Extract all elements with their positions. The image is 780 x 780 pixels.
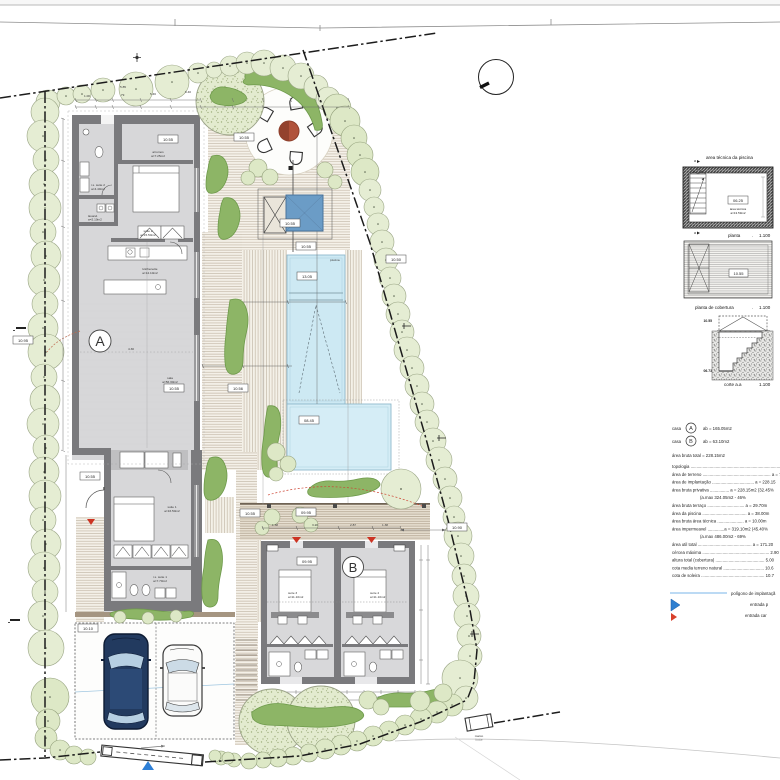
svg-text:topologia ....................: topologia ..............................… <box>672 464 780 469</box>
svg-text:09.95: 09.95 <box>302 559 313 564</box>
svg-text:área de terreno ..............: área de terreno ........................… <box>672 472 780 477</box>
svg-text:área de implantação ..........: área de implantação ....................… <box>672 480 776 485</box>
svg-text:A: A <box>689 426 693 432</box>
svg-text:10.50: 10.50 <box>391 257 402 262</box>
svg-text:1.00: 1.00 <box>84 94 90 98</box>
svg-text:a=11.10m2: a=11.10m2 <box>370 595 386 599</box>
svg-text:cota media terreno natural ...: cota media terreno natural .............… <box>672 565 774 570</box>
svg-text:5.85: 5.85 <box>120 85 126 89</box>
svg-text:08.45: 08.45 <box>304 418 315 423</box>
svg-text:09.95: 09.95 <box>301 510 312 515</box>
svg-text:1.100: 1.100 <box>759 233 771 238</box>
svg-text:a=16.50m2: a=16.50m2 <box>164 509 180 513</box>
svg-text:10.56: 10.56 <box>233 386 244 391</box>
svg-text:06.73: 06.73 <box>704 369 713 373</box>
svg-text:10.90: 10.90 <box>452 525 463 530</box>
svg-text:polígono de implantaçã: polígono de implantaçã <box>731 591 776 596</box>
svg-text:area técnica da piscina: area técnica da piscina <box>706 155 753 160</box>
svg-text:6.40: 6.40 <box>185 90 191 94</box>
svg-text:ab = 165.05m2: ab = 165.05m2 <box>703 426 732 431</box>
svg-text:10.55: 10.55 <box>245 511 256 516</box>
svg-text:B: B <box>349 560 358 575</box>
svg-text:(a.max 324.05m2 - 46%: (a.max 324.05m2 - 46% <box>700 495 746 500</box>
svg-text:10.55: 10.55 <box>85 474 96 479</box>
svg-text:entrada car: entrada car <box>745 613 767 618</box>
svg-text:planta: planta <box>728 233 741 238</box>
svg-text:área da piscina ..............: área da piscina ........................… <box>672 511 770 516</box>
svg-text:a: a <box>694 159 696 163</box>
svg-text:cércea máxima ................: cércea máxima ..........................… <box>672 550 779 555</box>
svg-text:1.100: 1.100 <box>759 305 771 310</box>
svg-text:altura total (cobertura) .....: altura total (cobertura) ...............… <box>672 558 775 563</box>
svg-text:casa: casa <box>672 439 682 444</box>
svg-text:2.87: 2.87 <box>350 523 356 527</box>
svg-text:10.95: 10.95 <box>18 338 29 343</box>
svg-text:4.30: 4.30 <box>128 347 134 351</box>
svg-text:entrada p: entrada p <box>750 602 769 607</box>
svg-text:planta de cobertura: planta de cobertura <box>695 305 734 310</box>
svg-text:10.55: 10.55 <box>163 137 174 142</box>
svg-text:5.46: 5.46 <box>150 92 156 96</box>
svg-text:área bruta privativa .........: área bruta privativa ................ a … <box>672 487 774 492</box>
svg-text:a=7.70m2: a=7.70m2 <box>153 579 167 583</box>
svg-text:piscina: piscina <box>330 258 340 262</box>
svg-text:corte a.a: corte a.a <box>724 382 742 387</box>
svg-text:B: B <box>689 439 693 445</box>
svg-text:a=7.25m2: a=7.25m2 <box>151 154 165 158</box>
svg-text:área bruta terraço ...........: área bruta terraço .....................… <box>672 503 768 508</box>
svg-text:1.38: 1.38 <box>382 523 388 527</box>
svg-text:área bruta área técnica ......: área bruta área técnica ................… <box>672 519 767 524</box>
svg-text:13.05: 13.05 <box>302 274 313 279</box>
svg-text:ab = 63.10m2: ab = 63.10m2 <box>703 439 730 444</box>
svg-text:10.10: 10.10 <box>83 626 94 631</box>
svg-text:a=11.10m2: a=11.10m2 <box>288 595 304 599</box>
svg-text:área impermeavel .............: área impermeavel ..............a = 319.1… <box>672 526 768 531</box>
svg-text:1.38: 1.38 <box>272 523 278 527</box>
svg-text:casa: casa <box>672 426 682 431</box>
svg-text:.: . <box>752 305 753 310</box>
svg-text:a=56.30m2: a=56.30m2 <box>162 380 178 384</box>
svg-text:06.25: 06.25 <box>733 198 744 203</box>
svg-text:.79: .79 <box>120 93 125 97</box>
svg-text:10.55: 10.55 <box>733 271 744 276</box>
svg-text:(a.max 486.00m2 - 69%: (a.max 486.00m2 - 69% <box>700 534 746 539</box>
svg-text:área bruta total = 228.15m2: área bruta total = 228.15m2 <box>672 453 726 458</box>
svg-text:10.55: 10.55 <box>285 221 296 226</box>
svg-text:a: a <box>694 231 696 235</box>
svg-text:10.55: 10.55 <box>239 135 250 140</box>
svg-text:área util total ..............: área util total ........................… <box>672 542 774 547</box>
svg-text:a=15.50m2: a=15.50m2 <box>140 233 156 237</box>
svg-text:10.55: 10.55 <box>704 319 713 323</box>
svg-text:a=13.59m2: a=13.59m2 <box>730 211 745 215</box>
svg-text:cota de soleira ..............: cota de soleira ........................… <box>672 573 775 578</box>
svg-text:.: . <box>752 233 753 238</box>
svg-text:3.20: 3.20 <box>312 523 318 527</box>
svg-text:a=2.10m2: a=2.10m2 <box>88 218 102 222</box>
svg-text:10.55: 10.55 <box>301 244 312 249</box>
svg-text:a=12.10m2: a=12.10m2 <box>142 271 158 275</box>
svg-text:10.55: 10.55 <box>169 386 180 391</box>
svg-text:1.100: 1.100 <box>759 382 771 387</box>
svg-text:A: A <box>95 333 105 349</box>
